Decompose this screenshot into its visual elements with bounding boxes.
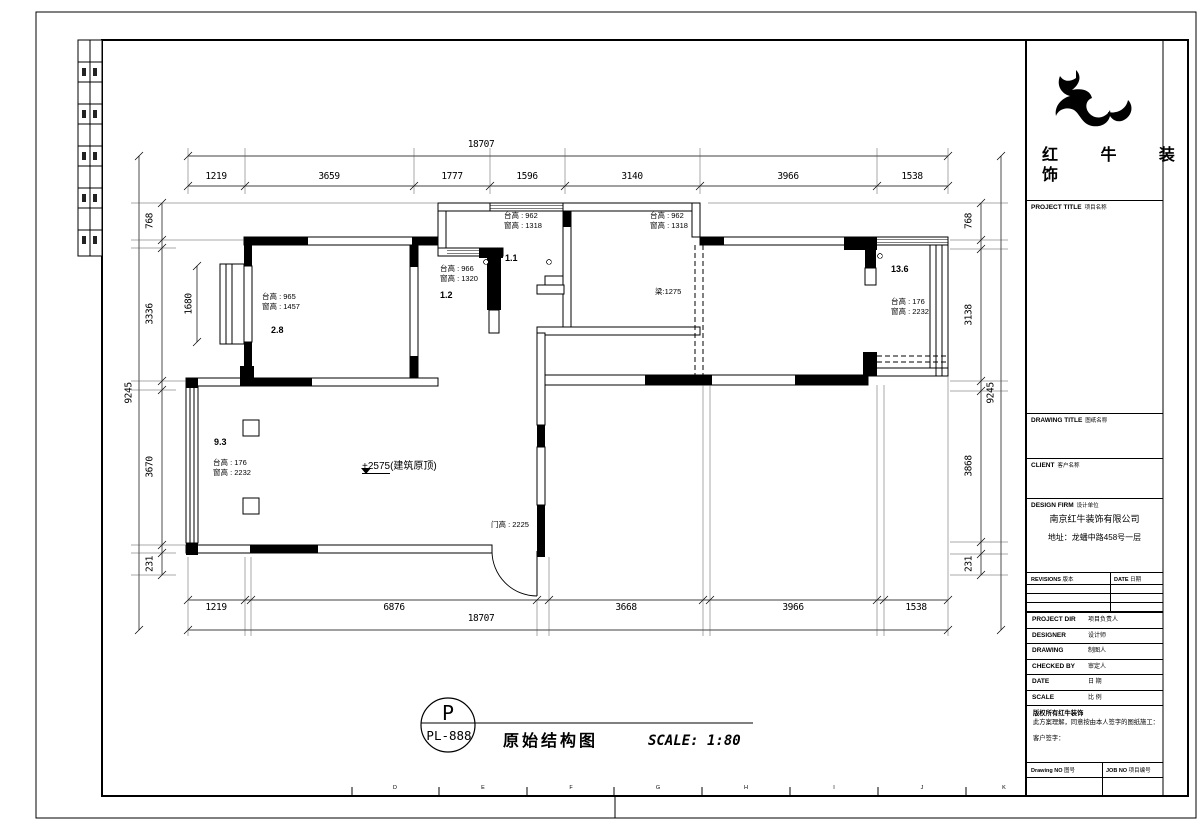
dim-bottom-seg-4: 1538 <box>905 602 926 613</box>
grid-letter: E <box>481 785 485 791</box>
door-height-note: 门高 : 2225 <box>491 520 529 530</box>
drawing-title-section: DRAWING TITLE图纸名称 <box>1026 413 1163 458</box>
room-label: 13.6 <box>891 264 909 274</box>
dim-left-seg-0: 768 <box>145 213 156 229</box>
sheet-drawing-title: 原始结构图 <box>503 727 598 751</box>
dim-top-seg-3: 1596 <box>516 171 537 182</box>
dim-bottom-seg-2: 3668 <box>615 602 636 613</box>
dim-top-overall: 18707 <box>468 139 495 150</box>
stamp-letter: P <box>442 701 454 725</box>
grid-letter: K <box>1002 785 1006 791</box>
project-dir-row: PROJECT DIR项目负责人 <box>1026 612 1163 628</box>
dim-left-seg-3: 231 <box>145 556 156 572</box>
dim-left-seg-2: 3670 <box>145 456 156 477</box>
grid-letter: G <box>656 785 660 791</box>
project-title-section: PROJECT TITLE项目名称 <box>1026 200 1163 413</box>
title-block: 红 牛 装 饰 PROJECT TITLE项目名称 DRAWING TITLE图… <box>1026 40 1163 796</box>
grid-letter: J <box>921 785 924 791</box>
window-height-note: 台高 : 176窗高 : 2232 <box>891 297 929 316</box>
dim-top-seg-2: 1777 <box>441 171 462 182</box>
dim-bottom-seg-3: 3966 <box>782 602 803 613</box>
copyright-section: 版权所有红牛装饰 此方案理解，同意按由本人签字的图纸施工： 客户签字： <box>1026 705 1163 762</box>
revisions-row <box>1026 594 1163 603</box>
dim-left-overall: 9245 <box>124 382 135 403</box>
window-height-note: 台高 : 176窗高 : 2232 <box>213 458 251 477</box>
dim-top-seg-1: 3659 <box>318 171 339 182</box>
beam-note: 梁:1275 <box>655 287 681 297</box>
brand-name-line2: 饰 <box>1042 161 1058 185</box>
date-row: DATE日 期 <box>1026 674 1163 690</box>
designer-row: DESIGNER设计师 <box>1026 628 1163 644</box>
revisions-row <box>1026 585 1163 594</box>
revisions-row <box>1026 603 1163 612</box>
room-label: 9.3 <box>214 437 227 447</box>
dim-right-overall: 9245 <box>986 382 997 403</box>
dim-right-seg-2: 3868 <box>964 455 975 476</box>
window-height-note: 台高 : 962窗高 : 1318 <box>504 211 542 230</box>
dim-top-seg-0: 1219 <box>205 171 226 182</box>
brand-name-line1: 红 牛 装 <box>1042 141 1194 165</box>
level-triangle-icon <box>361 468 371 474</box>
room-label: 1.2 <box>440 290 453 300</box>
dim-left-seg-1: 3336 <box>145 303 156 324</box>
dim-bottom-seg-0: 1219 <box>205 602 226 613</box>
window-height-note: 台高 : 962窗高 : 1318 <box>650 211 688 230</box>
floor-plan-linework <box>0 0 1200 833</box>
client-section: CLIENT客户名称 <box>1026 458 1163 498</box>
room-label: 1.1 <box>505 253 518 263</box>
dim-left-inner: 1680 <box>184 293 195 314</box>
drawing-sheet: 18707 1219 3659 1777 1596 3140 3966 1538… <box>0 0 1200 833</box>
dim-right-seg-3: 231 <box>964 556 975 572</box>
grid-letter: F <box>569 785 572 791</box>
drawing-row: DRAWING制图人 <box>1026 643 1163 659</box>
checked-by-row: CHECKED BY审定人 <box>1026 659 1163 675</box>
drawing-no-section: Drawing NO 图号 JOB NO 项目编号 <box>1026 762 1163 796</box>
grid-letter: I <box>833 785 835 791</box>
sheet-scale: SCALE: 1:80 <box>648 733 741 749</box>
firm-name: 南京红牛装饰有限公司 <box>1026 512 1163 525</box>
window-height-note: 台高 : 965窗高 : 1457 <box>262 292 300 311</box>
scale-row: SCALE比 例 <box>1026 690 1163 706</box>
dim-right-seg-1: 3138 <box>964 304 975 325</box>
dim-right-seg-0: 768 <box>964 213 975 229</box>
dim-bottom-overall: 18707 <box>468 613 495 624</box>
grid-letter: D <box>393 785 397 791</box>
grid-letter: H <box>744 785 748 791</box>
dim-top-seg-5: 3966 <box>777 171 798 182</box>
room-label: 2.8 <box>271 325 284 335</box>
dim-top-seg-6: 1538 <box>901 171 922 182</box>
dim-bottom-seg-1: 6876 <box>383 602 404 613</box>
firm-address: 地址：龙蟠中路458号一层 <box>1026 532 1163 543</box>
revisions-header: REVISIONS 版本 DATE 日期 <box>1026 572 1163 585</box>
window-height-note: 台高 : 966窗高 : 1320 <box>440 264 478 283</box>
stamp-code: PL-888 <box>426 728 471 743</box>
dim-top-seg-4: 3140 <box>621 171 642 182</box>
level-marker: +2575(建筑原顶) <box>362 457 437 472</box>
